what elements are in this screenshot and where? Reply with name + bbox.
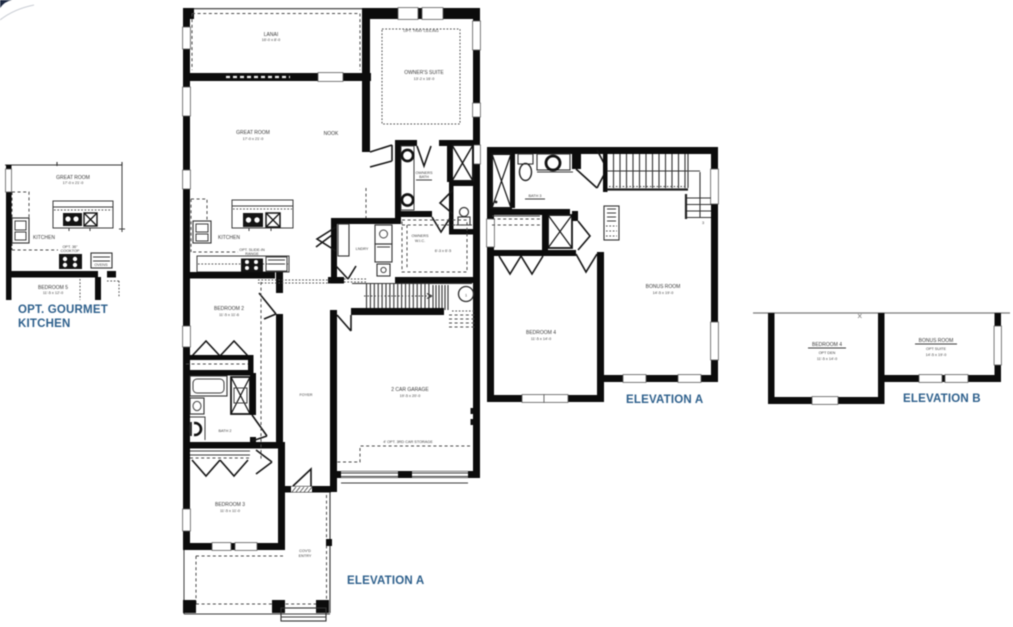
svg-text:BEDROOM 4: BEDROOM 4 [526, 330, 556, 336]
svg-text:BATH 3: BATH 3 [528, 194, 541, 198]
svg-text:NOOK: NOOK [324, 131, 339, 137]
svg-text:KITCHEN: KITCHEN [18, 318, 71, 330]
svg-text:BATH 2: BATH 2 [218, 429, 231, 433]
svg-text:OPT. TRAY CEILING: OPT. TRAY CEILING [403, 29, 438, 33]
svg-text:KITCHEN: KITCHEN [218, 235, 240, 241]
svg-text:3: 3 [702, 221, 704, 225]
svg-text:17'-0 x 21'-0: 17'-0 x 21'-0 [63, 181, 84, 185]
svg-text:ENTRY: ENTRY [299, 554, 312, 558]
svg-text:W.I.C.: W.I.C. [415, 239, 425, 243]
svg-text:11'-5 x 11'-0: 11'-5 x 11'-0 [220, 509, 240, 513]
svg-text:11'-5 x 12'-0: 11'-5 x 12'-0 [43, 291, 63, 295]
svg-text:OPT SUITE: OPT SUITE [926, 347, 946, 351]
svg-text:GREAT ROOM: GREAT ROOM [236, 130, 270, 136]
svg-text:4' OPT. 3RD CAR STORAGE: 4' OPT. 3RD CAR STORAGE [383, 440, 433, 444]
svg-text:14'-5 x 19'-0: 14'-5 x 19'-0 [653, 291, 674, 295]
svg-text:COOKTOP: COOKTOP [61, 249, 80, 253]
svg-text:BONUS ROOM: BONUS ROOM [646, 284, 681, 290]
svg-text:17'-0 x 21'-0: 17'-0 x 21'-0 [243, 137, 264, 141]
svg-text:BEDROOM 3: BEDROOM 3 [215, 502, 245, 508]
svg-text:OVENS: OVENS [94, 263, 108, 267]
svg-text:ELEVATION B: ELEVATION B [903, 393, 981, 405]
svg-text:KITCHEN: KITCHEN [33, 235, 55, 241]
svg-text:16'-0 x 8'-0: 16'-0 x 8'-0 [262, 38, 281, 42]
svg-text:COV'D: COV'D [299, 549, 311, 553]
svg-text:14'-5 x 19'-0: 14'-5 x 19'-0 [926, 353, 947, 357]
svg-text:BATH: BATH [419, 175, 429, 179]
svg-text:BONUS ROOM: BONUS ROOM [919, 338, 954, 344]
svg-text:BEDROOM 2: BEDROOM 2 [214, 306, 244, 312]
svg-text:11'-5 x 14'-0: 11'-5 x 14'-0 [817, 357, 837, 361]
svg-text:ELEVATION A: ELEVATION A [626, 394, 703, 406]
svg-text:6'-3 x 6'-5: 6'-3 x 6'-5 [435, 249, 451, 253]
svg-text:OWNERS: OWNERS [411, 234, 429, 238]
svg-text:1: 1 [465, 294, 467, 298]
svg-text:2 CAR GARAGE: 2 CAR GARAGE [391, 387, 429, 393]
svg-text:ELEVATION A: ELEVATION A [347, 575, 424, 587]
svg-text:LNDRY: LNDRY [356, 247, 369, 251]
svg-text:19'-5 x 20'-0: 19'-5 x 20'-0 [400, 394, 421, 398]
svg-text:OPT DEN: OPT DEN [819, 351, 836, 355]
svg-text:FOYER: FOYER [299, 393, 312, 397]
svg-text:11'-5 x 11'-6: 11'-5 x 11'-6 [219, 313, 239, 317]
svg-text:OWNER'S SUITE: OWNER'S SUITE [404, 70, 444, 76]
svg-text:OPT. GOURMET: OPT. GOURMET [18, 304, 108, 316]
svg-text:13'-2 x 16'-0: 13'-2 x 16'-0 [414, 77, 435, 81]
svg-text:RANGE: RANGE [245, 252, 259, 256]
svg-text:BEDROOM 4: BEDROOM 4 [812, 342, 842, 348]
svg-text:11'-5 x 14'-0: 11'-5 x 14'-0 [531, 337, 551, 341]
